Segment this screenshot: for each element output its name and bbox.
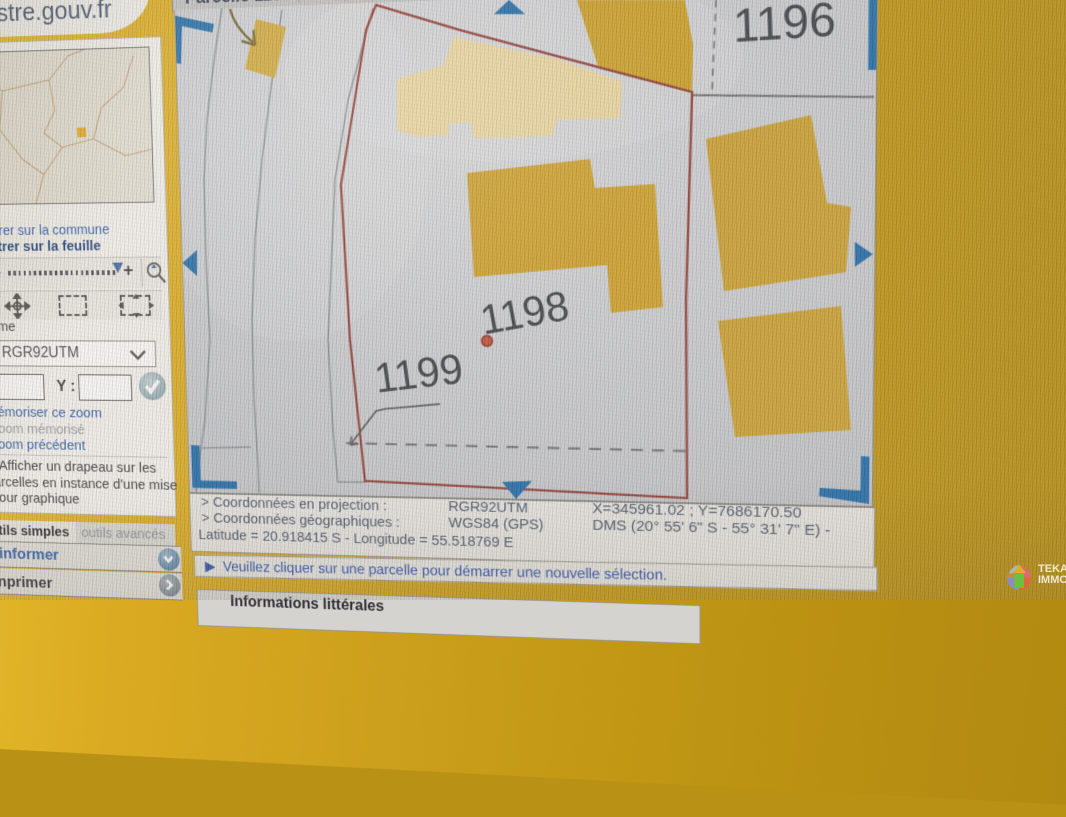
svg-text:1196: 1196 [732,0,836,52]
